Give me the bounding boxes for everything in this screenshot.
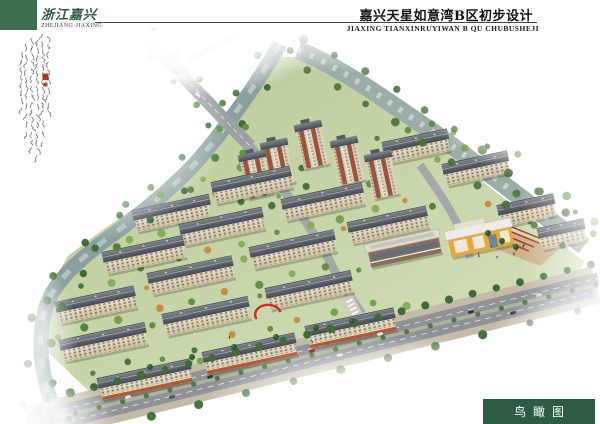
- project-title-en: JIAXING TIANXINRUYIWAN B QU CHUBUSHEJI: [347, 24, 539, 33]
- aerial-rendering: [0, 0, 600, 424]
- region-name-cn: 浙江嘉兴: [41, 4, 97, 23]
- brand-color-block: [0, 0, 37, 30]
- seal-stamp: [43, 74, 49, 81]
- presentation-board: 浙江嘉兴 ZHEJIANG·JIAXING 嘉兴天星如意湾B区初步设计 JIAX…: [0, 0, 600, 424]
- project-title-cn: 嘉兴天星如意湾B区初步设计: [360, 5, 534, 24]
- view-label-box: 鸟瞰图: [483, 399, 595, 424]
- region-name-en: ZHEJIANG·JIAXING: [41, 23, 102, 29]
- view-label-text: 鸟瞰图: [514, 405, 571, 419]
- seal-stamp-small: [44, 83, 48, 87]
